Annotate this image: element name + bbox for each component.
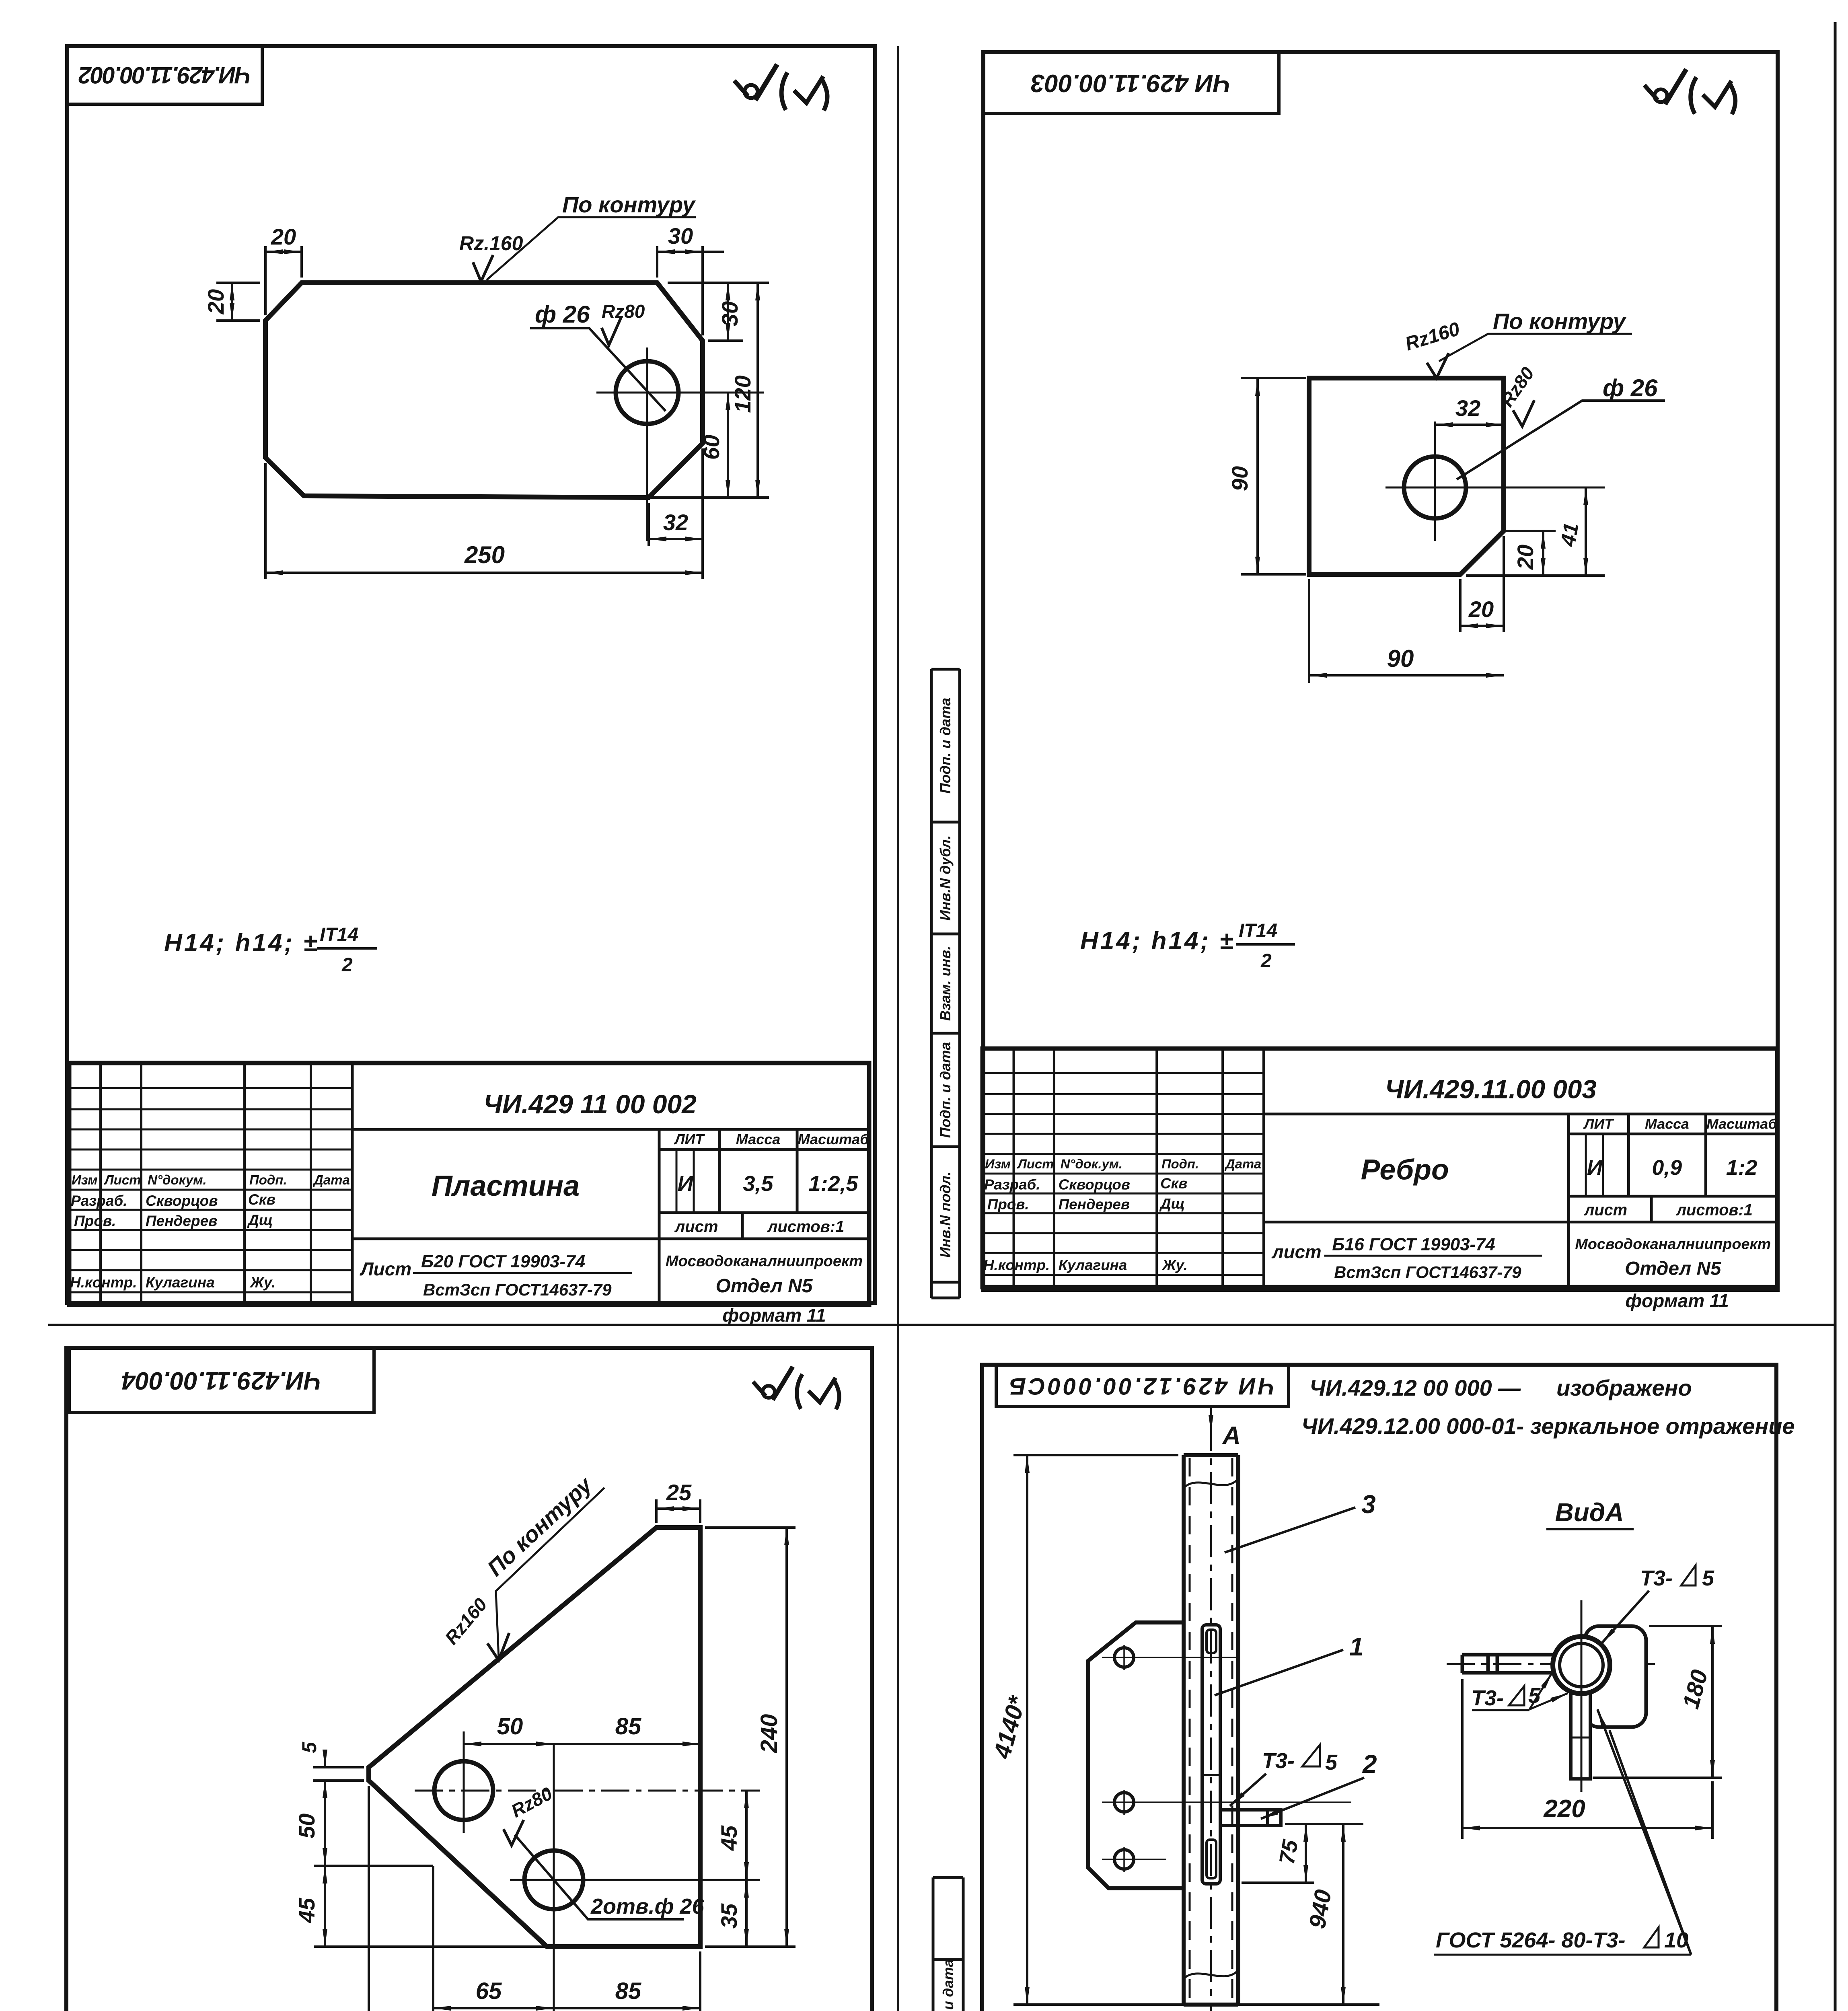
svg-text:Н.контр.: Н.контр.	[983, 1257, 1050, 1273]
svg-text:35: 35	[716, 1903, 742, 1929]
svg-text:32: 32	[1455, 395, 1480, 421]
svg-text:2отв.ф 26: 2отв.ф 26	[590, 1894, 704, 1918]
svg-text:45: 45	[294, 1898, 319, 1923]
svg-text:Пластина: Пластина	[432, 1170, 580, 1202]
svg-text:20: 20	[1513, 545, 1538, 570]
svg-text:30: 30	[668, 223, 693, 249]
svg-text:Дата: Дата	[1224, 1156, 1261, 1171]
svg-text:120: 120	[730, 375, 755, 413]
svg-text:Подп. и дата: Подп. и дата	[937, 698, 954, 794]
svg-text:5: 5	[1325, 1750, 1338, 1775]
svg-text:50: 50	[497, 1713, 523, 1740]
svg-text:ВидА: ВидА	[1555, 1498, 1624, 1527]
svg-text:И: И	[678, 1172, 694, 1196]
svg-text:По контуру: По контуру	[562, 192, 696, 217]
svg-text:Скворцов: Скворцов	[146, 1193, 218, 1209]
svg-text:Разраб.: Разраб.	[71, 1193, 127, 1209]
svg-text:Rz.160: Rz.160	[459, 232, 523, 255]
svg-text:90: 90	[1387, 645, 1414, 672]
svg-text:Б20 ГОСТ 19903-74: Б20 ГОСТ 19903-74	[421, 1252, 585, 1271]
svg-text:240: 240	[756, 1714, 782, 1754]
svg-text:IT14: IT14	[320, 924, 358, 946]
svg-text:Отдел N5: Отдел N5	[716, 1275, 813, 1297]
svg-text:формат 11: формат 11	[722, 1305, 826, 1326]
svg-text:5: 5	[298, 1742, 321, 1753]
svg-text:Кулагина: Кулагина	[146, 1274, 215, 1291]
svg-text:45: 45	[716, 1825, 742, 1851]
svg-text:Пендерев: Пендерев	[1059, 1196, 1130, 1213]
svg-text:ЛИТ: ЛИТ	[674, 1131, 705, 1147]
svg-text:Отдел N5: Отдел N5	[1625, 1258, 1721, 1279]
svg-text:65: 65	[476, 1978, 502, 2004]
svg-text:ЧИ 429.11.00.003: ЧИ 429.11.00.003	[1031, 69, 1231, 97]
svg-text:25: 25	[666, 1480, 692, 1505]
svg-text:20: 20	[271, 224, 296, 249]
svg-text:Взам. инв.: Взам. инв.	[937, 946, 954, 1021]
svg-text:Масса: Масса	[736, 1131, 781, 1147]
svg-text:1: 1	[1349, 1632, 1364, 1661]
svg-text:листов:1: листов:1	[1675, 1201, 1753, 1219]
svg-text:Маcса: Маcса	[1645, 1116, 1689, 1132]
svg-text:3: 3	[1361, 1490, 1376, 1519]
svg-text:Rz80: Rz80	[602, 301, 645, 322]
svg-text:1:2: 1:2	[1726, 1156, 1758, 1180]
svg-text:90: 90	[1227, 466, 1252, 491]
svg-text:85: 85	[615, 1713, 641, 1740]
svg-text:IT14: IT14	[1239, 920, 1277, 942]
svg-text:Мосводоканалниипроект: Мосводоканалниипроект	[666, 1253, 863, 1270]
svg-text:Пров.: Пров.	[987, 1196, 1029, 1213]
svg-text:ЧИ.429.11.00 003: ЧИ.429.11.00 003	[1385, 1075, 1597, 1104]
svg-text:Дщ: Дщ	[1159, 1195, 1185, 1212]
svg-text:Подп. и дата: Подп. и дата	[940, 1959, 956, 2011]
svg-text:Изм: Изм	[72, 1172, 98, 1187]
svg-text:Лист: Лист	[360, 1258, 411, 1279]
svg-text:Инв.N дубл.: Инв.N дубл.	[937, 835, 954, 921]
svg-text:ЛИТ: ЛИТ	[1583, 1116, 1614, 1132]
svg-text:N°док.ум.: N°док.ум.	[1061, 1156, 1122, 1171]
svg-text:Ребро: Ребро	[1361, 1154, 1449, 1186]
svg-text:Инв.N подл.: Инв.N подл.	[937, 1172, 954, 1258]
svg-text:Пров.: Пров.	[74, 1213, 116, 1229]
svg-text:Мосводоканалниипроект: Мосводоканалниипроект	[1575, 1236, 1771, 1252]
svg-text:20: 20	[203, 289, 228, 315]
svg-text:По контуру: По контуру	[1493, 308, 1627, 334]
svg-text:Т3-: Т3-	[1471, 1686, 1504, 1710]
svg-text:50: 50	[294, 1814, 319, 1838]
svg-text:0,9: 0,9	[1652, 1156, 1682, 1180]
svg-text:H14; h14; ±: H14; h14; ±	[164, 929, 319, 957]
svg-text:ф 26: ф 26	[535, 301, 590, 328]
svg-text:Дата: Дата	[312, 1172, 350, 1187]
svg-text:ЧИ.429.11.00.004: ЧИ.429.11.00.004	[121, 1367, 322, 1394]
svg-text:H14; h14; ±: H14; h14; ±	[1080, 927, 1235, 955]
svg-text:1:2,5: 1:2,5	[808, 1172, 858, 1196]
svg-text:А: А	[1222, 1422, 1241, 1450]
svg-text:изображено: изображено	[1556, 1375, 1692, 1400]
svg-text:Масштаб: Масштаб	[798, 1131, 870, 1147]
svg-text:листов:1: листов:1	[767, 1218, 845, 1236]
svg-text:Лист: Лист	[104, 1172, 141, 1187]
svg-text:Т3-: Т3-	[1640, 1566, 1673, 1590]
svg-text:Разраб.: Разраб.	[984, 1176, 1040, 1193]
svg-text:Скв: Скв	[248, 1191, 275, 1208]
svg-text:30: 30	[717, 301, 742, 326]
svg-text:Б16 ГОСТ 19903-74: Б16 ГОСТ 19903-74	[1332, 1235, 1495, 1254]
svg-text:3,5: 3,5	[743, 1172, 773, 1196]
svg-text:Лист: Лист	[1017, 1156, 1054, 1171]
svg-text:220: 220	[1543, 1795, 1585, 1823]
svg-text:2: 2	[341, 954, 353, 976]
svg-text:Т3-: Т3-	[1262, 1749, 1295, 1773]
svg-text:32: 32	[663, 510, 688, 535]
svg-text:формат 11: формат 11	[1625, 1290, 1729, 1311]
svg-text:85: 85	[615, 1978, 641, 2004]
svg-text:лист: лист	[674, 1218, 718, 1236]
svg-text:Кулагина: Кулагина	[1059, 1257, 1127, 1273]
svg-text:ЧИ.429 11 00 002: ЧИ.429 11 00 002	[483, 1089, 697, 1119]
svg-text:лист: лист	[1584, 1201, 1627, 1219]
svg-text:лист: лист	[1271, 1242, 1321, 1262]
svg-text:ЧИ.429.11.00.002: ЧИ.429.11.00.002	[78, 62, 251, 88]
svg-text:75: 75	[1275, 1838, 1303, 1866]
svg-text:5: 5	[1702, 1566, 1714, 1590]
svg-text:250: 250	[464, 541, 505, 568]
svg-text:Подп.: Подп.	[249, 1172, 287, 1187]
svg-text:2: 2	[1260, 950, 1272, 972]
svg-text:Подп. и дата: Подп. и дата	[937, 1042, 954, 1138]
svg-text:N°докум.: N°докум.	[148, 1172, 207, 1187]
svg-text:Масштаб: Масштаб	[1706, 1116, 1777, 1132]
svg-text:Дщ: Дщ	[247, 1212, 273, 1228]
svg-text:Н.контр.: Н.контр.	[70, 1274, 137, 1291]
svg-text:ЧИ.429.12 00 000 —: ЧИ.429.12 00 000 —	[1309, 1375, 1521, 1400]
svg-text:41: 41	[1556, 521, 1583, 549]
svg-text:Скв: Скв	[1160, 1175, 1187, 1192]
svg-text:Пендерев: Пендерев	[146, 1213, 218, 1229]
svg-text:ВстЗсп ГОСТ14637-79: ВстЗсп ГОСТ14637-79	[423, 1280, 612, 1299]
svg-text:ф 26: ф 26	[1603, 374, 1658, 401]
svg-text:Скворцов: Скворцов	[1059, 1176, 1130, 1193]
svg-text:ЧИ.429.12.00 000-01- зеркально: ЧИ.429.12.00 000-01- зеркальное отражени…	[1301, 1413, 1795, 1439]
svg-text:ВстЗсп ГОСТ14637-79: ВстЗсп ГОСТ14637-79	[1334, 1263, 1521, 1282]
svg-text:20: 20	[1468, 596, 1494, 622]
svg-text:И: И	[1587, 1156, 1603, 1180]
svg-text:Жу.: Жу.	[1161, 1257, 1188, 1273]
svg-text:ГОСТ 5264- 80-Т3-: ГОСТ 5264- 80-Т3-	[1436, 1928, 1626, 1952]
svg-text:2: 2	[1362, 1750, 1377, 1779]
svg-text:Жу.: Жу.	[249, 1274, 275, 1291]
svg-text:Подп.: Подп.	[1161, 1156, 1199, 1171]
svg-text:Изм: Изм	[985, 1156, 1011, 1171]
